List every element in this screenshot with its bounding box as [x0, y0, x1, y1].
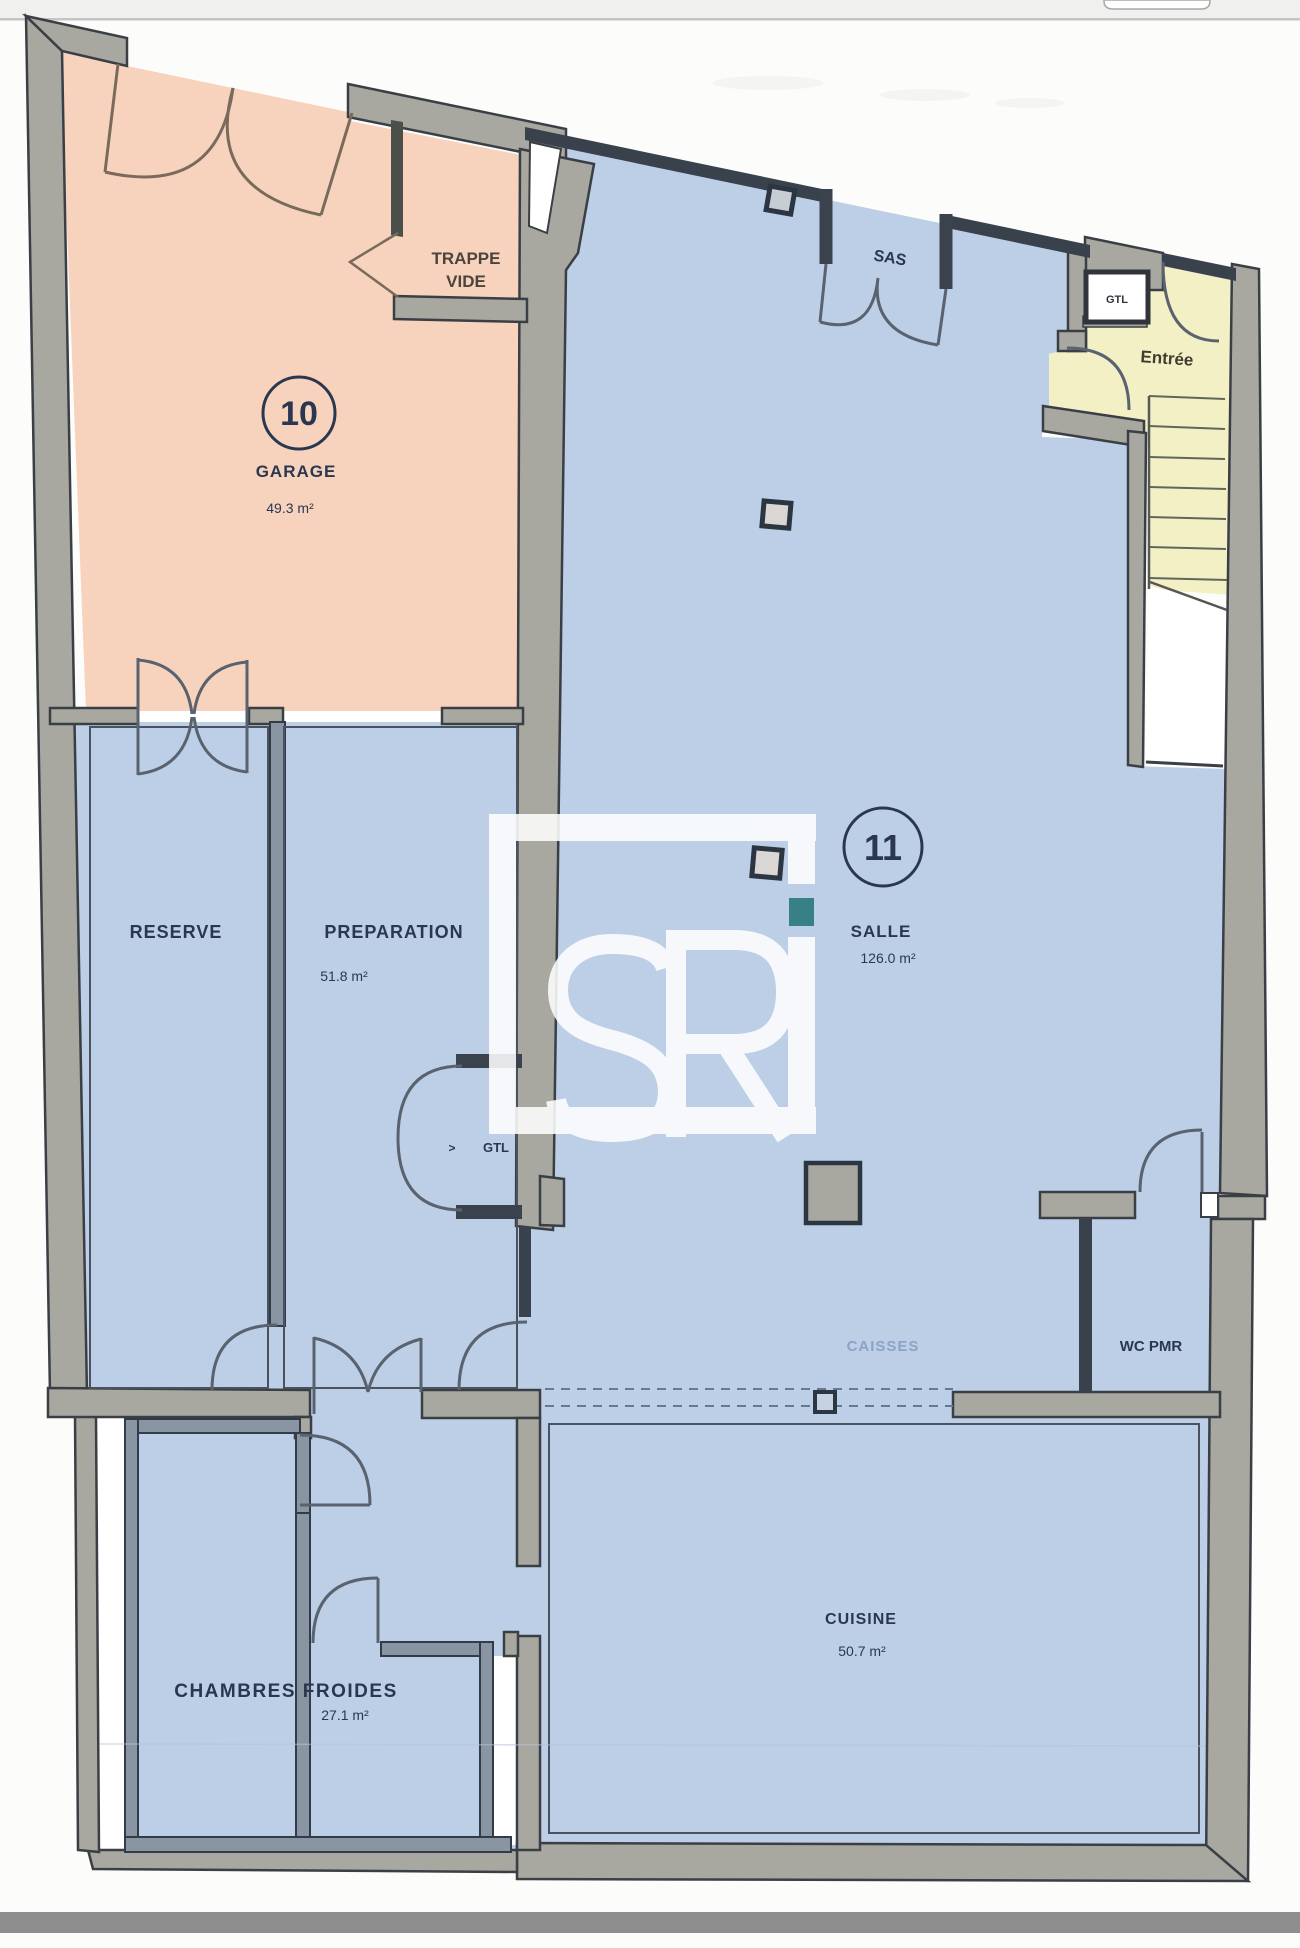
svg-text:11: 11: [864, 827, 902, 868]
svg-text:27.1 m²: 27.1 m²: [321, 1707, 369, 1723]
svg-text:CUISINE: CUISINE: [825, 1611, 897, 1628]
svg-text:10: 10: [280, 395, 318, 433]
svg-text:126.0 m²: 126.0 m²: [860, 950, 916, 966]
svg-text:Entrée: Entrée: [1140, 347, 1194, 370]
svg-text:50.7 m²: 50.7 m²: [838, 1643, 886, 1659]
svg-text:RESERVE: RESERVE: [130, 922, 223, 942]
svg-text:49.3 m²: 49.3 m²: [266, 500, 314, 516]
svg-text:SALLE: SALLE: [851, 922, 912, 941]
svg-text:CHAMBRES FROIDES: CHAMBRES FROIDES: [174, 1681, 398, 1702]
svg-text:WC PMR: WC PMR: [1120, 1338, 1183, 1355]
svg-text:TRAPPE: TRAPPE: [432, 249, 501, 268]
svg-text:VIDE: VIDE: [446, 272, 486, 291]
svg-text:>: >: [448, 1141, 455, 1155]
svg-text:51.8 m²: 51.8 m²: [320, 968, 368, 984]
svg-text:GARAGE: GARAGE: [256, 462, 337, 481]
svg-text:PREPARATION: PREPARATION: [324, 922, 463, 942]
svg-text:GTL: GTL: [1106, 294, 1128, 306]
svg-text:GTL: GTL: [483, 1140, 509, 1155]
svg-text:CAISSES: CAISSES: [847, 1338, 920, 1355]
